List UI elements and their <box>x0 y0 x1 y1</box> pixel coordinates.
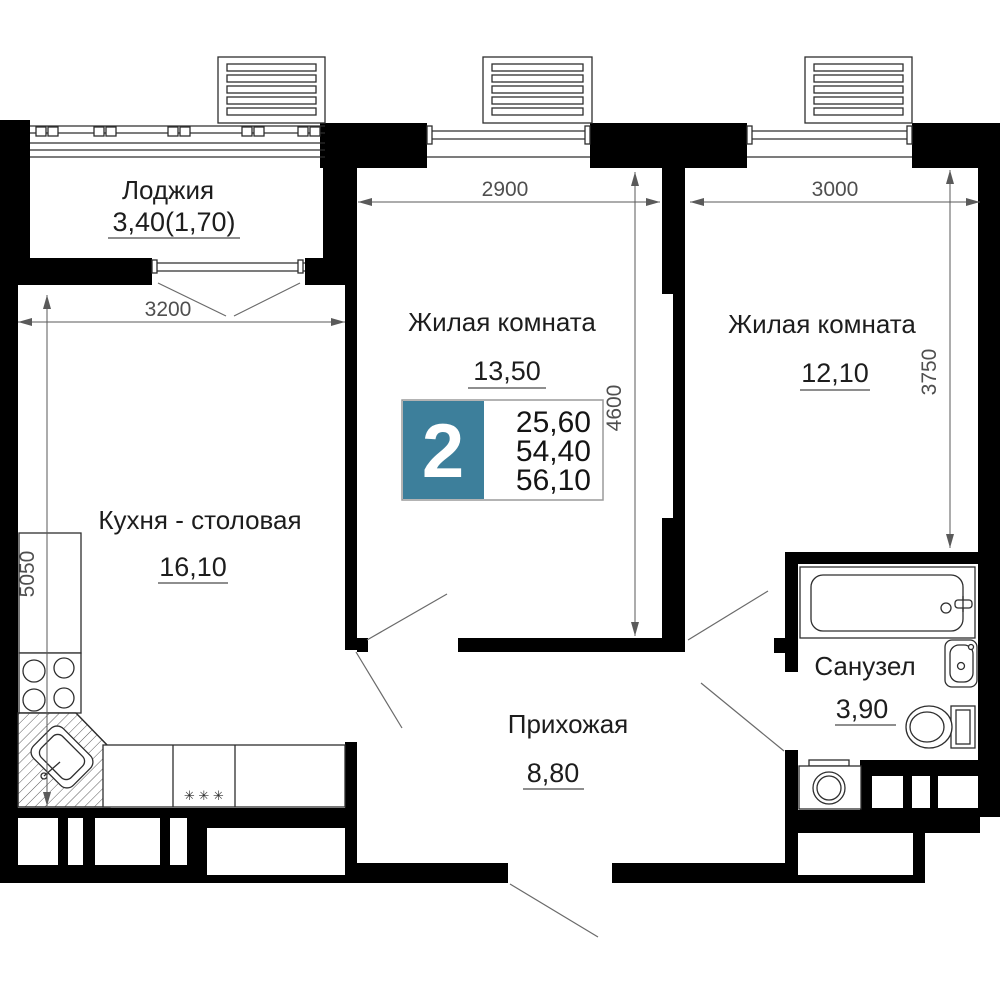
room-label-bathroom: Санузел 3,90 <box>814 651 915 725</box>
dimension-value: 2900 <box>482 178 529 201</box>
dimension-value: 4600 <box>603 385 626 432</box>
room-name: Жилая комната <box>728 309 916 339</box>
stove-icon <box>19 653 81 713</box>
room-name: Прихожая <box>508 709 628 739</box>
room-label-living2: Жилая комната 12,10 <box>728 309 916 390</box>
window-icon <box>747 126 912 157</box>
room-label-kitchen: Кухня - столовая 16,10 <box>98 505 301 583</box>
stove-marks: ✳ ✳ ✳ <box>184 788 224 803</box>
bathtub-icon <box>800 567 975 638</box>
room-name: Кухня - столовая <box>98 505 301 535</box>
dimension-value: 3200 <box>145 298 192 321</box>
washing-machine-icon <box>799 760 861 809</box>
badge-area-total: 56,10 <box>516 464 591 497</box>
floor-plan: ✳ ✳ ✳ 2900 <box>0 0 1000 1000</box>
kitchen-counter: ✳ ✳ ✳ <box>103 745 345 807</box>
dimension-value: 3000 <box>812 178 859 201</box>
room-name: Лоджия <box>122 175 214 205</box>
ac-unit-icon <box>483 57 592 123</box>
dimension-kitchen-width: 3200 <box>18 298 345 326</box>
room-area: 12,10 <box>801 358 869 388</box>
room-label-living1: Жилая комната 13,50 <box>408 307 596 388</box>
loggia-glazing-icon <box>30 126 325 157</box>
window-icon <box>427 126 590 157</box>
room-area: 13,50 <box>473 356 541 386</box>
ac-unit-icon <box>805 57 912 123</box>
room-label-hallway: Прихожая 8,80 <box>508 709 628 789</box>
floor-plan-page: ✳ ✳ ✳ 2900 <box>0 0 1000 1000</box>
room-name: Жилая комната <box>408 307 596 337</box>
dimension-value: 3750 <box>918 349 941 396</box>
dimension-value: 5050 <box>16 551 39 598</box>
room-area: 3,40(1,70) <box>112 207 235 237</box>
dimension-living2-width: 3000 <box>690 178 980 206</box>
dimension-living2-depth: 3750 <box>918 170 954 548</box>
dimension-living1-depth: 4600 <box>603 172 639 636</box>
room-area: 16,10 <box>159 552 227 582</box>
room-label-loggia: Лоджия 3,40(1,70) <box>108 175 240 238</box>
apartment-badge: 2 25,60 54,40 56,10 <box>402 400 603 500</box>
room-area: 8,80 <box>527 758 580 788</box>
room-name: Санузел <box>814 651 915 681</box>
kitchen-corner-sink-icon <box>18 713 110 807</box>
toilet-icon <box>906 706 975 748</box>
room-area: 3,90 <box>836 694 889 724</box>
bathroom-sink-icon <box>945 640 977 687</box>
ac-unit-icon <box>218 57 325 123</box>
dimension-living1-width: 2900 <box>358 178 660 206</box>
badge-room-count: 2 <box>422 409 464 494</box>
